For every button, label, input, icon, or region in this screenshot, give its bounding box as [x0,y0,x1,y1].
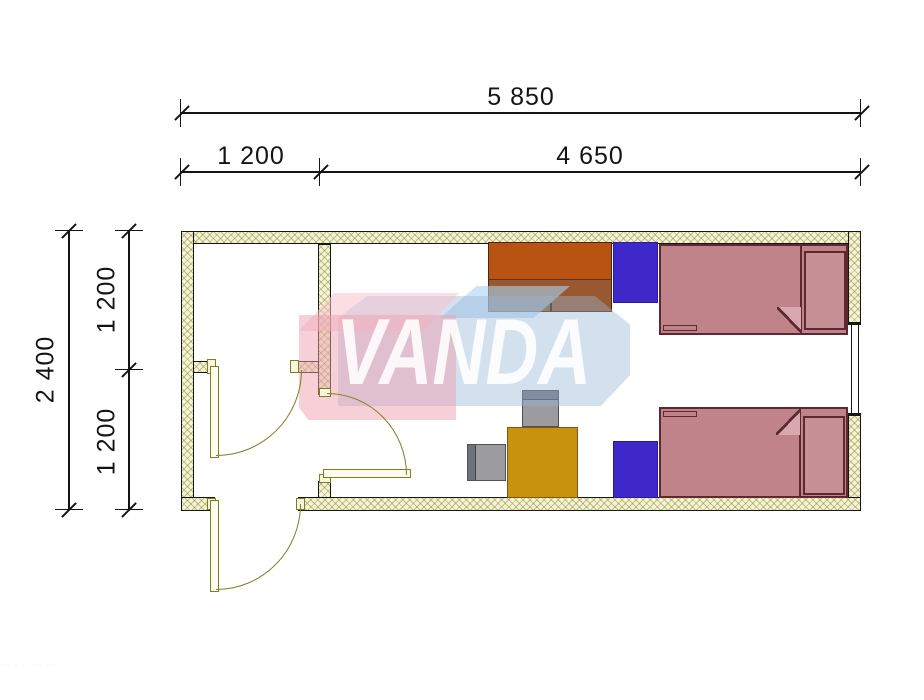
bed-footboard [663,325,697,331]
dimension-label-total-height: 2 400 [34,300,59,440]
dimension-line-width-segments [181,171,861,173]
chair-backrest [523,391,558,400]
dimension-label-total-width: 5 850 [441,85,601,110]
chair-beside-desk [467,444,506,481]
wall-stub-bottom [318,481,331,498]
wall-bottom-right [298,497,861,511]
dimension-line-total-width [181,112,861,114]
pillow [803,416,845,495]
watermark-blue-arrow [338,296,630,406]
blanket-fold [777,307,801,332]
chair-behind-desk [522,390,559,427]
dimension-label-entry-width: 1 200 [181,144,321,169]
door-swing-arc [327,393,407,475]
bed-bottom [659,407,848,498]
chair-backrest [468,445,476,480]
corner-note: ··· ·· ·· ···· ··· [2,663,55,669]
wall-partition [318,244,331,395]
nightstand-bottom [613,441,658,498]
door-swing-arc [216,370,302,456]
dimension-label-room-width: 4 650 [480,144,700,169]
nightstand-top [613,242,658,303]
bed-top [659,244,848,335]
wardrobe [488,242,612,312]
dimension-label-room2-height: 1 200 [95,387,120,497]
wardrobe-handle [550,303,552,311]
desk [507,427,578,498]
watermark-brand-text: VANDA [336,305,591,399]
pillow [804,251,846,330]
floor-plan-canvas: 5 850 1 200 4 650 2 400 1 200 1 200 [0,0,924,700]
wall-right-upper [848,231,861,323]
door-swing-arc [216,504,301,590]
dimension-line-total-height [68,231,70,510]
dimension-label-room1-height: 1 200 [95,245,120,355]
window [848,323,861,415]
bed-footboard [663,411,697,417]
blanket-fold [776,410,800,435]
